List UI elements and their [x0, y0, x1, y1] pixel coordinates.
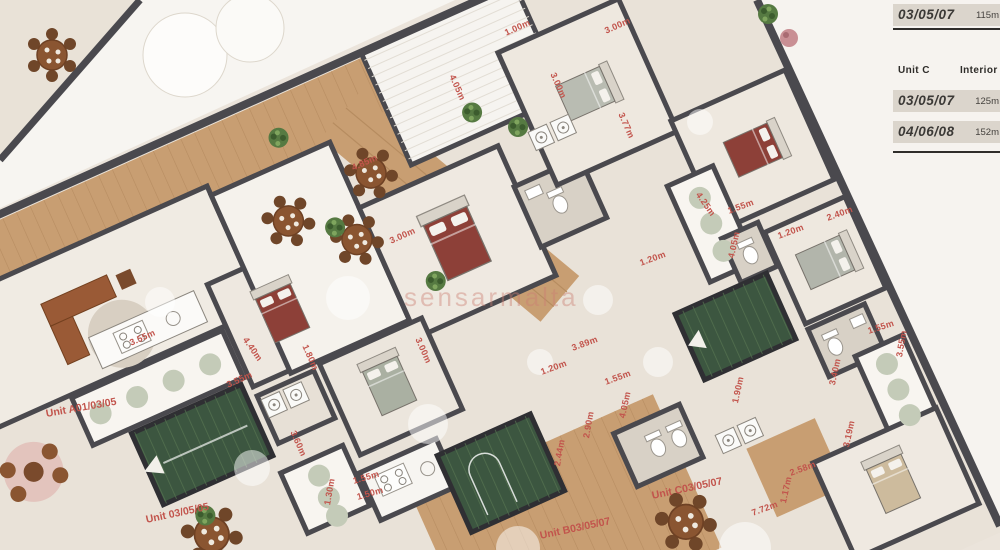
- unit-header: Unit C: [898, 65, 930, 76]
- floor-plan: [0, 0, 1000, 550]
- unit-floors: 04/06/08: [898, 124, 955, 139]
- table-row[interactable]: 03/05/07 125m: [893, 90, 1000, 112]
- table-row[interactable]: 04/06/08 152m: [893, 121, 1000, 143]
- divider: [893, 28, 1000, 30]
- table-row[interactable]: 03/05/07 115m: [893, 4, 1000, 26]
- unit-floors: 03/05/07: [898, 93, 955, 108]
- floor-plan-page: sensarmalta Unit A01/03/05 Unit B03/05/0…: [0, 0, 1000, 550]
- unit-area: 152m: [975, 127, 999, 138]
- divider: [893, 151, 1000, 153]
- unit-area: 115m: [976, 10, 999, 21]
- unit-area: 125m: [975, 96, 999, 107]
- watermark: sensarmalta: [404, 282, 579, 313]
- interior-column-header: Interior: [960, 65, 998, 76]
- unit-floors: 03/05/07: [898, 7, 955, 22]
